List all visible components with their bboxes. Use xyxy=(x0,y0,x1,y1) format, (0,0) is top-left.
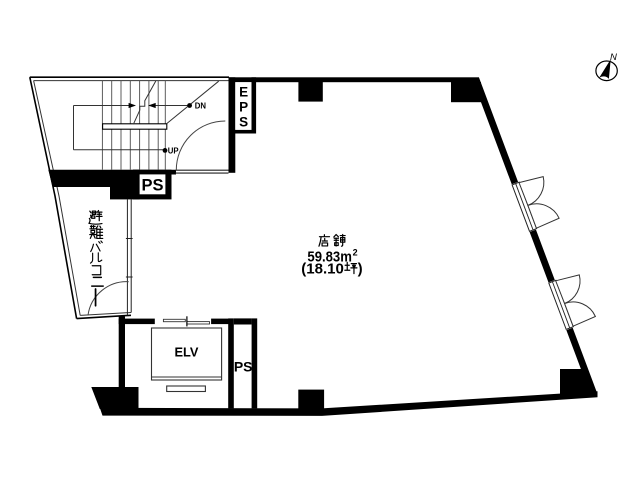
svg-text:P: P xyxy=(239,100,248,115)
svg-text:PS: PS xyxy=(141,176,163,194)
svg-text:DN: DN xyxy=(195,102,207,111)
svg-text:S: S xyxy=(239,115,248,130)
svg-text:N: N xyxy=(610,52,617,63)
svg-text:UP: UP xyxy=(168,147,179,156)
svg-text:2: 2 xyxy=(353,248,358,258)
svg-text:(18.10: (18.10 xyxy=(301,260,344,277)
svg-text:): ) xyxy=(358,260,363,277)
svg-text:E: E xyxy=(239,85,248,100)
svg-text:PS: PS xyxy=(234,358,253,374)
svg-text:ELV: ELV xyxy=(175,345,199,360)
